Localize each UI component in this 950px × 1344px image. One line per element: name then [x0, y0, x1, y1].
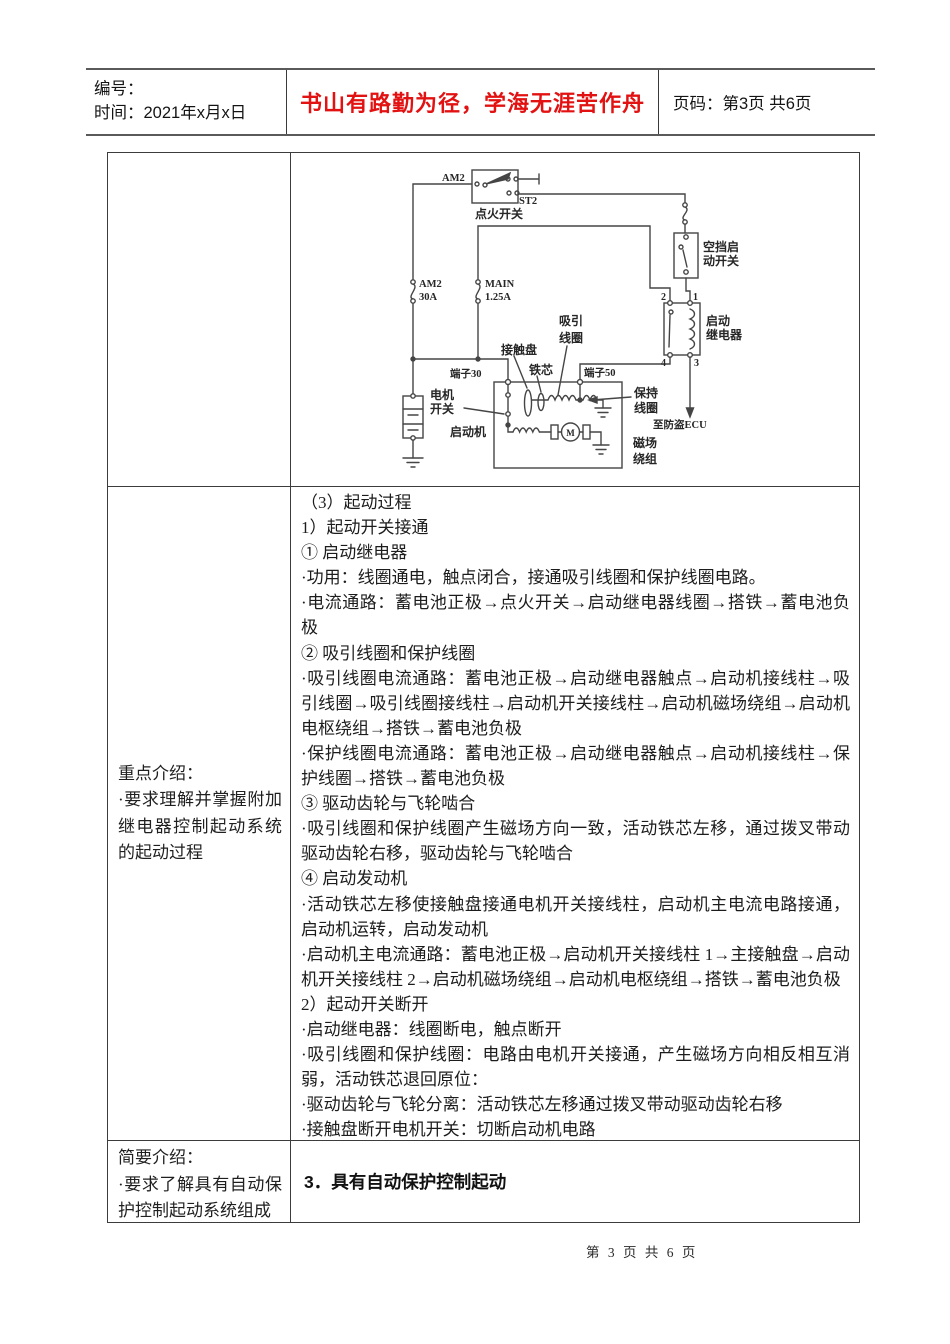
relay-terminal-2: [668, 301, 673, 306]
battery-pos-terminal: [411, 394, 415, 398]
junction-battery: [411, 357, 415, 361]
fuse-am2-name-label: AM2: [419, 279, 442, 290]
diagram-row-left-cell: [108, 153, 291, 486]
relay-num-2: 2: [661, 292, 666, 303]
fuse-main-symbol: [476, 284, 480, 299]
pull-coil-label-1: 吸引: [559, 314, 583, 328]
process-line: ③ 驱动齿轮与飞轮啮合: [301, 791, 850, 816]
wire-st2: [519, 194, 685, 203]
header-left-cell: 编号： 时间：2021年x月x日: [86, 70, 287, 134]
motor-switch-pointer: [464, 408, 504, 414]
neutral-switch-arm: [683, 250, 687, 267]
document-page: { "header": { "number_label": "编号：", "ti…: [0, 0, 950, 1344]
process-line: ·吸引线圈和保护线圈产生磁场方向一致，活动铁芯左移，通过拨叉带动驱动齿轮右移，驱…: [301, 816, 850, 866]
junction-main: [476, 357, 480, 361]
doc-number-label: 编号：: [94, 77, 282, 101]
contact-disc-pointer: [514, 356, 527, 388]
hold-coil-pointer: [592, 397, 631, 400]
motor-switch-label-1: 电机: [430, 387, 454, 402]
page-number-label: 页码：第3页 共6页: [673, 90, 811, 114]
battery-ground: [403, 458, 423, 467]
switch-contact-upper: [506, 393, 510, 397]
page-footer: 第 3 页 共 6 页: [586, 1241, 698, 1261]
header-right-cell: 页码：第3页 共6页: [659, 70, 875, 134]
motor-ground: [593, 445, 609, 454]
relay-num-4: 4: [661, 358, 666, 369]
diagram-row-right-cell: AM2 ST2 点火开关 AM2 30A MAIN 1.25A 空挡启 动开关 …: [291, 153, 859, 486]
circuit-diagram: AM2 ST2 点火开关 AM2 30A MAIN 1.25A 空挡启 动开关 …: [291, 153, 859, 487]
section-heading-cell: 3．具有自动保护控制起动: [291, 1141, 859, 1222]
pull-coil-label-2: 线圈: [559, 330, 583, 345]
ignition-st2-contact-b: [515, 191, 519, 195]
key-intro-cell: 重点介绍： ·要求理解并掌握附加继电器控制起动系统的起动过程: [108, 487, 291, 1140]
neutral-switch-contact: [679, 245, 683, 249]
ignition-switch-box: [472, 170, 518, 203]
table-row-diagram: AM2 ST2 点火开关 AM2 30A MAIN 1.25A 空挡启 动开关 …: [108, 153, 859, 487]
st2-terminal-label: ST2: [519, 196, 537, 207]
terminal-30-post: [506, 380, 511, 385]
fuse-am2-bottom-terminal: [411, 299, 415, 303]
pull-in-coil-shape: [548, 396, 576, 401]
wire-am2: [413, 184, 472, 279]
neutral-switch-top-terminal: [684, 235, 688, 239]
header-table: 编号： 时间：2021年x月x日 书山有路勤为径，学海无涯苦作舟 页码：第3页 …: [86, 68, 875, 136]
neutral-switch-bottom-terminal: [684, 270, 688, 274]
brief-intro-cell: 简要介绍： ·要求了解具有自动保护控制起动系统组成: [108, 1141, 291, 1222]
fuse-st-symbol: [683, 207, 687, 220]
section-3-heading: 3．具有自动保护控制起动: [291, 1141, 859, 1222]
doc-time-label: 时间：2021年x月x日: [94, 101, 282, 125]
ignition-switch-label: 点火开关: [475, 206, 523, 221]
process-text-block: （3）起动过程 1）起动开关接通 ① 启动继电器 ·功用：线圈通电，触点闭合，接…: [291, 487, 859, 1142]
contact-disc-shape: [525, 390, 532, 416]
relay-contact: [669, 310, 673, 314]
am2-terminal-label: AM2: [442, 173, 465, 184]
process-line: ·保护线圈电流通路：蓄电池正极→启动继电器触点→启动机接线柱→保护线圈→搭铁→蓄…: [301, 741, 850, 791]
hold-coil-label-2: 线圈: [634, 400, 658, 415]
fuse-main-name-label: MAIN: [485, 279, 515, 290]
coil-ground: [595, 408, 611, 417]
process-line: ·活动铁芯左移使接触盘接通电机开关接线柱，启动机主电流电路接通，启动机运转，启动…: [301, 892, 850, 942]
ignition-st2-contact-a: [507, 191, 511, 195]
motor-brush-right: [583, 425, 590, 439]
relay-num-1: 1: [693, 292, 698, 303]
process-line: ② 吸引线圈和保护线圈: [301, 641, 850, 666]
process-line: ·接触盘断开电机开关：切断启动机电路: [301, 1117, 850, 1142]
motor-switch-contact: [506, 412, 510, 416]
process-line: ① 启动继电器: [301, 540, 850, 565]
iron-core-pointer: [537, 376, 541, 392]
fuse-main-bottom-terminal: [476, 299, 480, 303]
wire-neutral-to-relay: [686, 278, 690, 301]
process-line: ·启动继电器：线圈断电，触点断开: [301, 1017, 850, 1042]
process-line: ·电流通路：蓄电池正极→点火开关→启动继电器线圈→搭铁→蓄电池负极: [301, 590, 850, 640]
relay-label-2: 继电器: [706, 327, 743, 342]
relay-terminal-1: [688, 301, 693, 306]
relay-contact-arm: [669, 315, 670, 347]
process-line: 2）起动开关断开: [301, 992, 850, 1017]
relay-label-1: 启动: [706, 313, 730, 328]
process-line: ·驱动齿轮与飞轮分离：活动铁芯左移通过拨叉带动驱动齿轮右移: [301, 1092, 850, 1117]
field-winding-label-2: 绕组: [633, 451, 657, 466]
ignition-contact-1: [475, 182, 479, 186]
neutral-switch-label-2: 动开关: [703, 253, 739, 268]
contact-disc-label: 接触盘: [501, 342, 537, 357]
relay-coil: [690, 309, 695, 349]
field-winding-label-1: 磁场: [632, 435, 657, 450]
process-line: ·启动机主电流通路：蓄电池正极→启动机开关接线柱 1→主接触盘→启动机开关接线柱…: [301, 942, 850, 992]
process-line: ·功用：线圈通电，触点闭合，接通吸引线圈和保护线圈电路。: [301, 565, 850, 590]
table-row-bottom: 简要介绍： ·要求了解具有自动保护控制起动系统组成 3．具有自动保护控制起动: [108, 1141, 859, 1222]
fuse-main-rating-label: 1.25A: [485, 292, 511, 303]
process-line: （3）起动过程: [301, 490, 850, 515]
battery-plates: [403, 409, 423, 430]
brief-intro-body: ·要求了解具有自动保护控制起动系统组成: [118, 1172, 282, 1225]
process-line: ④ 启动发动机: [301, 866, 850, 891]
iron-core-shape: [538, 394, 544, 411]
to-ecu-label: 至防盗ECU: [653, 418, 707, 431]
neutral-switch-label-1: 空挡启: [703, 239, 739, 254]
brief-intro-title: 简要介绍：: [118, 1145, 282, 1172]
key-intro-body: ·要求理解并掌握附加继电器控制起动系统的起动过程: [118, 787, 282, 867]
starter-circuit-svg: AM2 ST2 点火开关 AM2 30A MAIN 1.25A 空挡启 动开关 …: [400, 158, 752, 482]
wire-coil-to-ground: [597, 400, 603, 408]
starter-label: 启动机: [450, 424, 486, 439]
motor-m-label: M: [566, 428, 575, 438]
process-line: 1）起动开关接通: [301, 515, 850, 540]
fuse-am2-rating-label: 30A: [419, 292, 438, 303]
iron-core-label: 铁芯: [529, 362, 553, 377]
lesson-table: AM2 ST2 点火开关 AM2 30A MAIN 1.25A 空挡启 动开关 …: [107, 152, 860, 1223]
field-winding-shape: [513, 428, 539, 432]
terminal-50-post: [578, 380, 583, 385]
battery-shape: [403, 396, 423, 438]
process-cell: （3）起动过程 1）起动开关接通 ① 启动继电器 ·功用：线圈通电，触点闭合，接…: [291, 487, 859, 1140]
pull-coil-pointer: [558, 346, 567, 395]
key-intro-title: 重点介绍：: [118, 761, 282, 788]
process-line: ·吸引线圈和保护线圈：电路由电机开关接通，产生磁场方向相反相互消弱，活动铁芯退回…: [301, 1042, 850, 1092]
hold-coil-label-1: 保持: [633, 385, 658, 400]
header-middle-cell: 书山有路勤为径，学海无涯苦作舟: [287, 70, 659, 134]
motor-brush-left: [551, 425, 558, 439]
process-line: ·吸引线圈电流通路：蓄电池正极→启动继电器触点→启动机接线柱→吸引线圈→吸引线圈…: [301, 666, 850, 741]
motor-switch-label-2: 开关: [430, 401, 454, 416]
junction-coil: [578, 398, 582, 402]
table-row-main: 重点介绍： ·要求理解并掌握附加继电器控制起动系统的起动过程 （3）起动过程 1…: [108, 487, 859, 1141]
header-motto: 书山有路勤为径，学海无涯苦作舟: [300, 86, 645, 118]
terminal-30-label: 端子30: [450, 367, 482, 380]
ignition-am1-stub: [518, 174, 539, 184]
terminal-50-label: 端子50: [584, 366, 616, 379]
relay-num-3: 3: [694, 358, 699, 369]
fuse-am2-symbol: [411, 284, 415, 299]
ecu-arrowhead: [687, 408, 694, 417]
